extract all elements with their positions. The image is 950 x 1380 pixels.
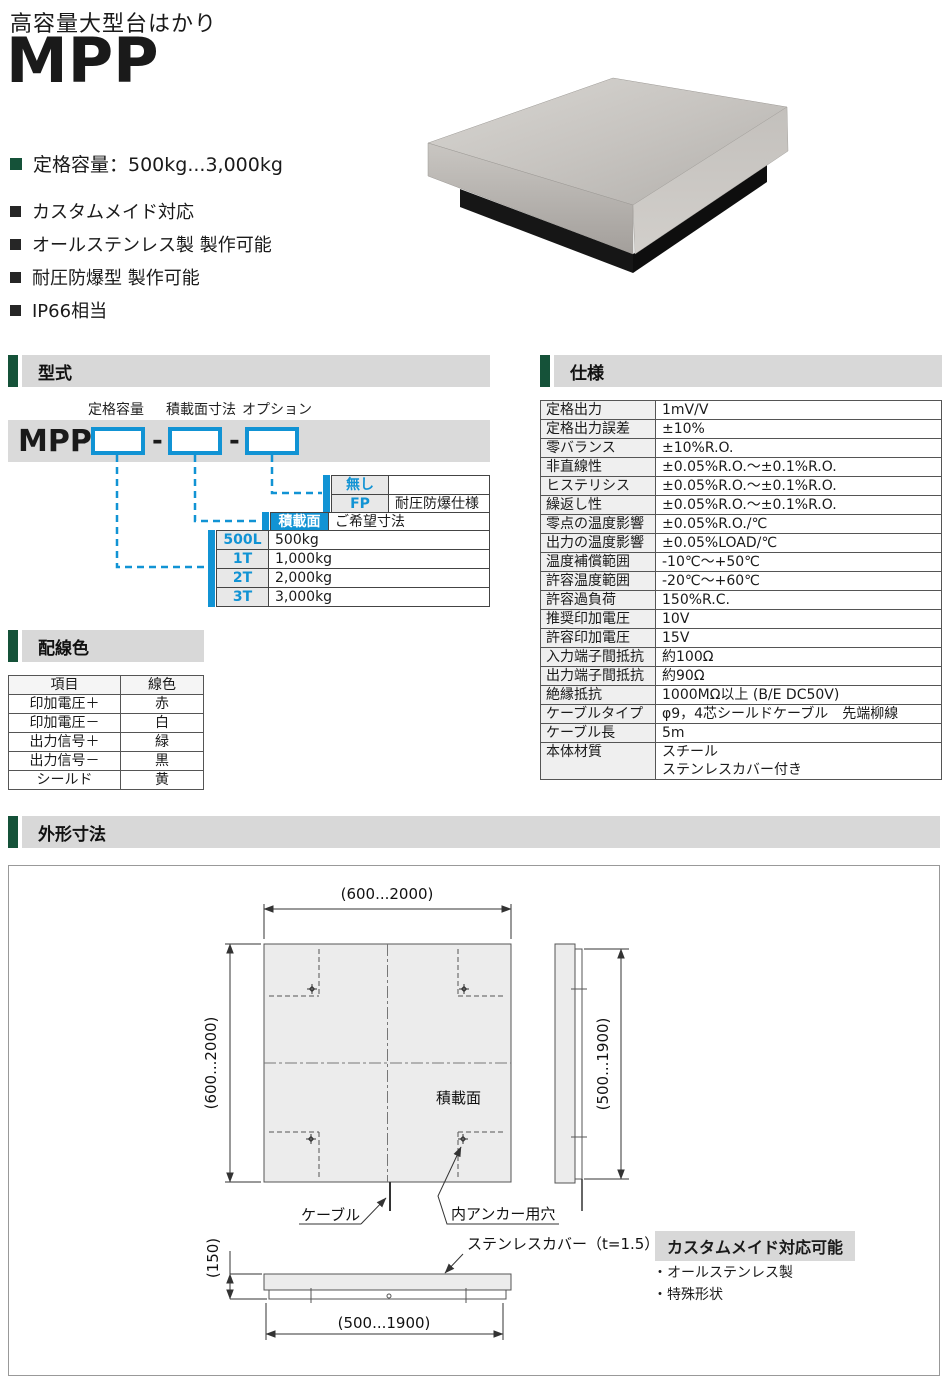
custom-made-title: カスタムメイド対応可能 bbox=[655, 1231, 855, 1261]
spec-label: 繰返し性 bbox=[541, 496, 655, 514]
spec-value: -10℃～+50℃ bbox=[655, 553, 941, 571]
feature-item-text: 耐圧防爆型 製作可能 bbox=[32, 264, 200, 290]
table-row: 許容印加電圧 15V bbox=[541, 629, 941, 648]
spec-value: 約90Ω bbox=[655, 667, 941, 685]
table-row: 出力の温度影響 ±0.05%LOAD/℃ bbox=[541, 534, 941, 553]
capacity-desc: 2,000kg bbox=[268, 569, 489, 587]
table-row: ケーブル長 5m bbox=[541, 724, 941, 743]
table-row: 出力信号＋ 緑 bbox=[9, 733, 203, 752]
spec-label: 入力端子間抵抗 bbox=[541, 648, 655, 666]
section-accent-bar bbox=[8, 355, 18, 387]
table-row: 絶縁抵抗 1000MΩ以上 (B/E DC50V) bbox=[541, 686, 941, 705]
product-model-title: MPP bbox=[6, 24, 159, 97]
table-row: 出力端子間抵抗 約90Ω bbox=[541, 667, 941, 686]
section-header-spec: 仕様 bbox=[540, 355, 942, 387]
table-row: 非直線性 ±0.05%R.O.～±0.1%R.O. bbox=[541, 458, 941, 477]
spec-label: 許容過負荷 bbox=[541, 591, 655, 609]
wiring-color: 白 bbox=[120, 714, 203, 732]
profile-plate bbox=[264, 1274, 511, 1290]
spec-label: 定格出力 bbox=[541, 401, 655, 419]
bullet-square-icon bbox=[10, 239, 21, 250]
capacity-code: 3T bbox=[217, 588, 268, 606]
bullet-square-icon bbox=[10, 305, 21, 316]
spec-value: ±0.05%R.O.～±0.1%R.O. bbox=[655, 477, 941, 495]
surface-desc: ご希望寸法 bbox=[328, 513, 489, 531]
section-header-model: 型式 bbox=[8, 355, 490, 387]
feature-item-text: IP66相当 bbox=[32, 297, 107, 323]
option-table: 無し FP 耐圧防爆仕様 bbox=[331, 475, 490, 514]
feature-item-text: オールステンレス製 製作可能 bbox=[32, 231, 272, 257]
spec-value: -20℃～+60℃ bbox=[655, 572, 941, 590]
table-row: 3T 3,000kg bbox=[217, 588, 489, 606]
model-code-box-option bbox=[245, 427, 299, 455]
capacity-desc: 500kg bbox=[268, 531, 489, 549]
wiring-header-item: 項目 bbox=[9, 676, 120, 694]
spec-value: 約100Ω bbox=[655, 648, 941, 666]
wiring-item: シールド bbox=[9, 771, 120, 789]
section-accent-bar bbox=[8, 630, 18, 662]
spec-value: ±10%R.O. bbox=[655, 439, 941, 457]
feature-list: カスタムメイド対応 オールステンレス製 製作可能 耐圧防爆型 製作可能 IP66… bbox=[10, 198, 272, 323]
table-row: 積載面 ご希望寸法 bbox=[271, 513, 489, 531]
capacity-desc: 1,000kg bbox=[268, 550, 489, 568]
spec-value: 10V bbox=[655, 610, 941, 628]
spec-table: 定格出力 1mV/V 定格出力誤差 ±10% 零バランス ±10%R.O. 非直… bbox=[540, 400, 942, 780]
spec-value: スチール ステンレスカバー付き bbox=[655, 743, 941, 779]
surface-code: 積載面 bbox=[271, 513, 328, 531]
connector-capacity bbox=[117, 455, 207, 567]
spec-label: ケーブル長 bbox=[541, 724, 655, 742]
spec-label: ケーブルタイプ bbox=[541, 705, 655, 723]
dim-top-width: (600...2000) bbox=[341, 885, 434, 903]
bullet-square-icon bbox=[10, 158, 22, 170]
side-view-cover bbox=[575, 949, 582, 1179]
spec-value: 1000MΩ以上 (B/E DC50V) bbox=[655, 686, 941, 704]
wiring-color: 黄 bbox=[120, 771, 203, 789]
custom-made-item: ・特殊形状 bbox=[653, 1284, 793, 1306]
table-row: シールド 黄 bbox=[9, 771, 203, 789]
model-code-box-capacity bbox=[91, 427, 145, 455]
option-table-accent-bar bbox=[323, 475, 330, 514]
spec-value: 1mV/V bbox=[655, 401, 941, 419]
section-title: 配線色 bbox=[22, 630, 204, 662]
feature-item: カスタムメイド対応 bbox=[10, 198, 272, 224]
datasheet-page: 高容量大型台はかり MPP 定格容量：500kg...3,000kg bbox=[0, 0, 950, 1380]
feature-item-text: カスタムメイド対応 bbox=[32, 198, 194, 224]
capacity-table-accent-bar bbox=[208, 530, 215, 607]
capacity-table: 500L 500kg 1T 1,000kg 2T 2,000kg 3T 3,00… bbox=[216, 530, 490, 607]
wiring-color: 緑 bbox=[120, 733, 203, 751]
feature-primary-text: 定格容量：500kg...3,000kg bbox=[33, 150, 283, 177]
spec-value: 150%R.C. bbox=[655, 591, 941, 609]
section-title: 外形寸法 bbox=[22, 816, 940, 848]
section-header-dimensions: 外形寸法 bbox=[8, 816, 940, 848]
dimensions-drawing: 積載面 (600...2000) (600...2000) ケーブル 内アンカー… bbox=[9, 866, 939, 1375]
wiring-item: 印加電圧＋ bbox=[9, 695, 120, 713]
cover-leader-arrow bbox=[445, 1254, 463, 1273]
capacity-code: 2T bbox=[217, 569, 268, 587]
connector-surface bbox=[195, 455, 261, 521]
option-code: FP bbox=[332, 495, 388, 513]
table-row: 零点の温度影響 ±0.05%R.O./℃ bbox=[541, 515, 941, 534]
feature-item: IP66相当 bbox=[10, 297, 272, 323]
spec-label: 許容印加電圧 bbox=[541, 629, 655, 647]
table-row: 2T 2,000kg bbox=[217, 569, 489, 588]
table-row: 本体材質 スチール ステンレスカバー付き bbox=[541, 743, 941, 779]
table-row: 繰返し性 ±0.05%R.O.～±0.1%R.O. bbox=[541, 496, 941, 515]
table-row: 印加電圧＋ 赤 bbox=[9, 695, 203, 714]
table-row: FP 耐圧防爆仕様 bbox=[332, 495, 489, 513]
table-row: 許容温度範囲 -20℃～+60℃ bbox=[541, 572, 941, 591]
wiring-item: 印加電圧－ bbox=[9, 714, 120, 732]
wiring-color: 赤 bbox=[120, 695, 203, 713]
surface-row-accent-bar bbox=[262, 512, 269, 532]
model-code-separator: - bbox=[152, 426, 163, 456]
spec-value: ±10% bbox=[655, 420, 941, 438]
spec-label: 出力の温度影響 bbox=[541, 534, 655, 552]
option-desc: 耐圧防爆仕様 bbox=[388, 495, 489, 513]
capacity-desc: 3,000kg bbox=[268, 588, 489, 606]
table-row: ケーブルタイプ φ9，4芯シールドケーブル 先端柳線 bbox=[541, 705, 941, 724]
spec-value: 15V bbox=[655, 629, 941, 647]
table-row: 定格出力 1mV/V bbox=[541, 401, 941, 420]
cable-leader-arrow bbox=[361, 1198, 386, 1224]
dim-left-height: (600...2000) bbox=[202, 1017, 220, 1110]
table-row: 入力端子間抵抗 約100Ω bbox=[541, 648, 941, 667]
bullet-square-icon bbox=[10, 272, 21, 283]
model-part-label-surface: 積載面寸法 bbox=[166, 399, 236, 419]
spec-label: 非直線性 bbox=[541, 458, 655, 476]
cable-label: ケーブル bbox=[301, 1206, 360, 1224]
wiring-color: 黒 bbox=[120, 752, 203, 770]
dim-profile-height: (150) bbox=[204, 1238, 222, 1278]
wiring-table: 項目 線色 印加電圧＋ 赤 印加電圧－ 白 出力信号＋ 緑 出力信号－ 黒 bbox=[8, 675, 204, 790]
custom-made-list: ・オールステンレス製 ・特殊形状 bbox=[653, 1262, 793, 1306]
option-desc bbox=[388, 476, 489, 494]
table-row: 許容過負荷 150%R.C. bbox=[541, 591, 941, 610]
stainless-cover-label: ステンレスカバー（t=1.5） bbox=[467, 1235, 659, 1253]
spec-value: ±0.05%R.O./℃ bbox=[655, 515, 941, 533]
table-row: 出力信号－ 黒 bbox=[9, 752, 203, 771]
spec-label: 定格出力誤差 bbox=[541, 420, 655, 438]
table-row: 1T 1,000kg bbox=[217, 550, 489, 569]
wiring-item: 出力信号－ bbox=[9, 752, 120, 770]
table-row: 定格出力誤差 ±10% bbox=[541, 420, 941, 439]
model-part-label-option: オプション bbox=[242, 399, 312, 419]
feature-primary: 定格容量：500kg...3,000kg bbox=[10, 150, 283, 177]
table-row: 500L 500kg bbox=[217, 531, 489, 550]
capacity-code: 1T bbox=[217, 550, 268, 568]
spec-value: 5m bbox=[655, 724, 941, 742]
spec-label: 推奨印加電圧 bbox=[541, 610, 655, 628]
model-part-label-capacity: 定格容量 bbox=[88, 399, 144, 419]
spec-label: 零点の温度影響 bbox=[541, 515, 655, 533]
table-row: 印加電圧－ 白 bbox=[9, 714, 203, 733]
table-row: ヒステリシス ±0.05%R.O.～±0.1%R.O. bbox=[541, 477, 941, 496]
option-code: 無し bbox=[332, 476, 388, 494]
table-row: 零バランス ±10%R.O. bbox=[541, 439, 941, 458]
product-photo bbox=[415, 42, 950, 322]
spec-value: φ9，4芯シールドケーブル 先端柳線 bbox=[655, 705, 941, 723]
spec-label: 零バランス bbox=[541, 439, 655, 457]
feature-item: 耐圧防爆型 製作可能 bbox=[10, 264, 272, 290]
bullet-square-icon bbox=[10, 206, 21, 217]
dim-side-height: (500...1900) bbox=[594, 1018, 612, 1111]
custom-made-item: ・オールステンレス製 bbox=[653, 1262, 793, 1284]
table-row: 温度補償範囲 -10℃～+50℃ bbox=[541, 553, 941, 572]
section-title: 型式 bbox=[22, 355, 490, 387]
side-view-plate bbox=[555, 944, 575, 1183]
feature-item: オールステンレス製 製作可能 bbox=[10, 231, 272, 257]
table-row: 推奨印加電圧 10V bbox=[541, 610, 941, 629]
section-accent-bar bbox=[540, 355, 550, 387]
dimensions-drawing-box: 積載面 (600...2000) (600...2000) ケーブル 内アンカー… bbox=[8, 865, 940, 1376]
table-row: 無し bbox=[332, 476, 489, 495]
anchor-hole-label: 内アンカー用穴 bbox=[451, 1205, 555, 1223]
section-title: 仕様 bbox=[554, 355, 942, 387]
wiring-header-row: 項目 線色 bbox=[9, 676, 203, 695]
spec-value: ±0.05%R.O.～±0.1%R.O. bbox=[655, 458, 941, 476]
loading-surface-label: 積載面 bbox=[436, 1089, 481, 1107]
spec-label: 絶縁抵抗 bbox=[541, 686, 655, 704]
spec-label: 出力端子間抵抗 bbox=[541, 667, 655, 685]
spec-label: 本体材質 bbox=[541, 743, 655, 779]
extension-lines bbox=[230, 1251, 267, 1299]
spec-value: ±0.05%R.O.～±0.1%R.O. bbox=[655, 496, 941, 514]
model-code-separator: - bbox=[76, 426, 87, 456]
capacity-code: 500L bbox=[217, 531, 268, 549]
wiring-item: 出力信号＋ bbox=[9, 733, 120, 751]
wiring-header-color: 線色 bbox=[120, 676, 203, 694]
surface-row: 積載面 ご希望寸法 bbox=[270, 512, 490, 532]
section-accent-bar bbox=[8, 816, 18, 848]
model-code-box-surface bbox=[168, 427, 222, 455]
dim-bottom-width: (500...1900) bbox=[338, 1314, 431, 1332]
spec-label: ヒステリシス bbox=[541, 477, 655, 495]
spec-value: ±0.05%LOAD/℃ bbox=[655, 534, 941, 552]
spec-label: 温度補償範囲 bbox=[541, 553, 655, 571]
spec-label: 許容温度範囲 bbox=[541, 572, 655, 590]
section-header-wiring: 配線色 bbox=[8, 630, 204, 662]
model-code-separator: - bbox=[229, 426, 240, 456]
